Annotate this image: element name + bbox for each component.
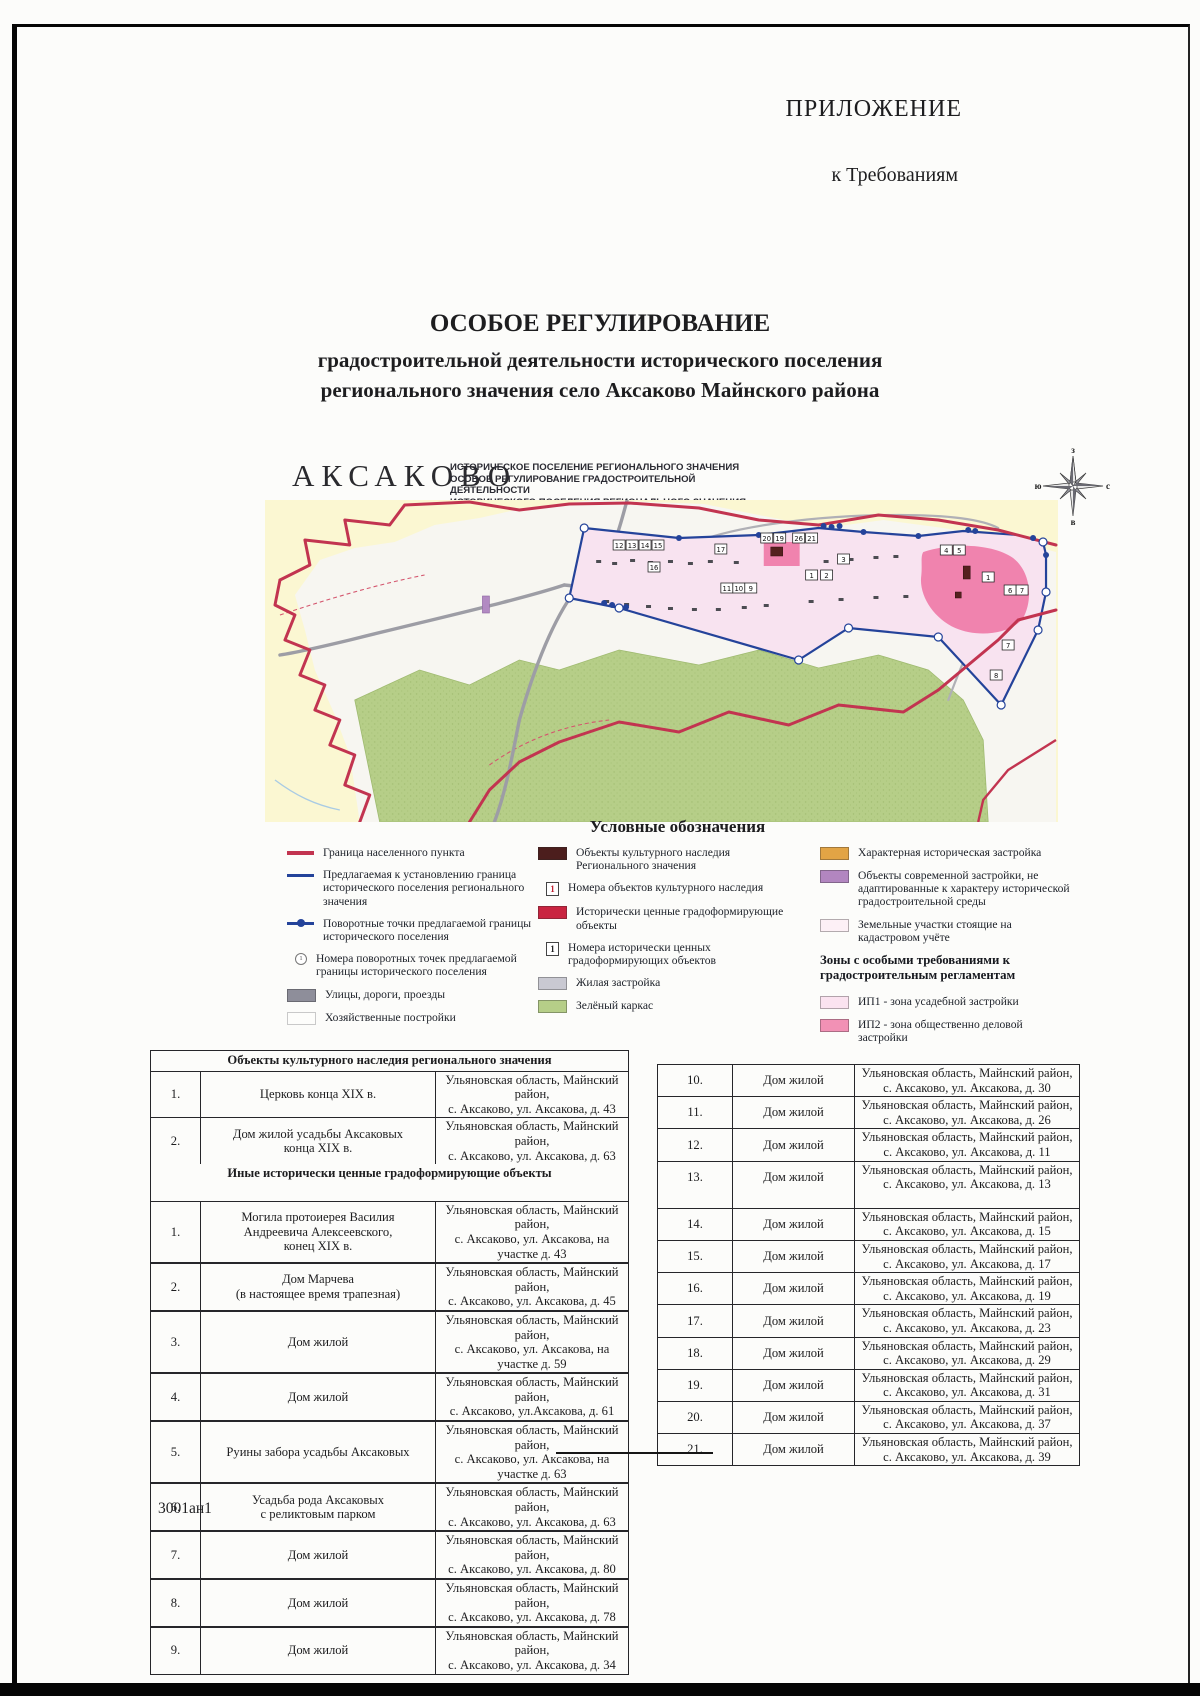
map-subtitle-line-1: ИСТОРИЧЕСКОЕ ПОСЕЛЕНИЕ РЕГИОНАЛЬНОГО ЗНА… (450, 462, 750, 474)
row-number: 12. (658, 1129, 733, 1160)
address-line-2: с. Аксаково, ул. Аксакова, д. 17 (858, 1257, 1076, 1272)
address-line-2: с. Аксаково, ул. Аксакова, на участке д.… (439, 1342, 625, 1371)
row-number: 11. (658, 1097, 733, 1128)
address-line-1: Ульяновская область, Майнский район, (439, 1203, 625, 1232)
legend-label: Объекты современной застройки, не адапти… (858, 869, 1070, 909)
legend-item: Земельные участки стоящие на кадастровом… (820, 918, 1070, 944)
legend-zone-item: ИП1 - зона усадебной застройки (820, 995, 1070, 1009)
legend-column-3: Характерная историческая застройка Объек… (820, 846, 1070, 1053)
svg-text:7: 7 (1006, 642, 1010, 650)
table-row: 15. Дом жилой Ульяновская область, Майнс… (658, 1241, 1079, 1273)
object-address: Ульяновская область, Майнский район, с. … (855, 1097, 1079, 1128)
legend-swatch (538, 1000, 567, 1013)
address-line-1: Ульяновская область, Майнский район, (858, 1435, 1076, 1450)
legend-item: Жилая застройка (538, 976, 788, 990)
svg-text:8: 8 (994, 672, 998, 680)
row-number: 13. (658, 1162, 733, 1208)
address-line-2: с. Аксаково, ул. Аксакова, д. 80 (439, 1562, 625, 1577)
object-name: Усадьба рода Аксаковых с реликтовым парк… (201, 1484, 436, 1530)
modern-building-mark (482, 596, 489, 613)
svg-text:1: 1 (986, 574, 990, 582)
address-line-2: с. Аксаково, ул. Аксакова, д. 29 (858, 1353, 1076, 1368)
address-line-2: с. Аксаково, ул. Аксакова, д. 19 (858, 1289, 1076, 1304)
object-address: Ульяновская область, Майнский район, с. … (855, 1370, 1079, 1401)
row-number: 3. (151, 1312, 201, 1372)
legend-swatch (820, 919, 849, 932)
legend-label: ИП1 - зона усадебной застройки (858, 995, 1019, 1008)
svg-text:11: 11 (723, 585, 732, 593)
row-number: 19. (658, 1370, 733, 1401)
address-line-1: Ульяновская область, Майнский район, (439, 1533, 625, 1562)
legend-swatch (287, 874, 314, 877)
table-row: 19. Дом жилой Ульяновская область, Майнс… (658, 1370, 1079, 1402)
object-name: Дом жилой (733, 1065, 855, 1096)
compass-north-label: с (1106, 481, 1110, 491)
legend-swatch (538, 847, 567, 860)
row-number: 2. (151, 1118, 201, 1164)
legend-column-2: Объекты культурного наследия Регионально… (538, 846, 788, 1022)
svg-text:9: 9 (749, 585, 753, 593)
object-address: Ульяновская область, Майнский район, с. … (855, 1241, 1079, 1272)
table-row: 1. Церковь конца XIX в. Ульяновская обла… (151, 1072, 628, 1119)
svg-text:7: 7 (1020, 587, 1024, 595)
legend-label: Жилая застройка (576, 976, 660, 989)
object-address: Ульяновская область, Майнский район, с. … (855, 1273, 1079, 1304)
row-number: 8. (151, 1580, 201, 1626)
document-page: ПРИЛОЖЕНИЕ к Требованиям ОСОБОЕ РЕГУЛИРО… (0, 0, 1200, 1696)
address-line-1: Ульяновская область, Майнский район, (858, 1210, 1076, 1225)
object-address: Ульяновская область, Майнский район, с. … (855, 1065, 1079, 1096)
address-line-2: с. Аксаково, ул. Аксакова, д. 26 (858, 1113, 1076, 1128)
legend-symbol: 1 (296, 954, 306, 964)
legend-label: Улицы, дороги, проезды (325, 988, 445, 1001)
legend-item: Хозяйственные постройки (287, 1011, 537, 1025)
object-address: Ульяновская область, Майнский район, с. … (855, 1129, 1079, 1160)
legend-label: Поворотные точки предлагаемой границы ис… (323, 917, 537, 943)
title-line-2: градостроительной деятельности историчес… (0, 345, 1200, 375)
legend-symbol: 1 (547, 883, 558, 895)
legend-label: ИП2 - зона общественно деловой застройки (858, 1018, 1070, 1044)
object-name: Церковь конца XIX в. (201, 1072, 436, 1118)
address-line-2: с. Аксаково, ул. Аксакова, д. 11 (858, 1145, 1076, 1160)
zones-heading: Зоны с особыми требованиями к градострои… (820, 953, 1070, 983)
legend-swatch (538, 977, 567, 990)
legend-item: 1 Номера поворотных точек предлагаемой г… (287, 952, 537, 978)
table-section-title: Объекты культурного наследия регионально… (151, 1051, 628, 1072)
address-line-1: Ульяновская область, Майнский район, (439, 1375, 625, 1404)
legend-label: Объекты культурного наследия Регионально… (576, 846, 788, 872)
legend-swatch (820, 1019, 849, 1032)
object-name: Дом жилой (733, 1209, 855, 1240)
settlement-map: 12 13 14 15 16 17 20 19 26 21 11 10 9 1 … (265, 500, 1058, 822)
scan-bottom-edge (0, 1683, 1200, 1696)
legend-swatch (287, 1012, 316, 1025)
address-line-2: с. Аксаково, ул. Аксакова, д. 37 (858, 1417, 1076, 1432)
object-address: Ульяновская область, Майнский район, с. … (436, 1264, 628, 1310)
object-address: Ульяновская область, Майнский район, с. … (436, 1118, 628, 1164)
address-line-1: Ульяновская область, Майнский район, (858, 1130, 1076, 1145)
row-number: 4. (151, 1374, 201, 1420)
svg-text:19: 19 (775, 535, 784, 543)
object-name: Дом жилой (733, 1129, 855, 1160)
heritage-objects-table: Объекты культурного наследия регионально… (150, 1050, 629, 1675)
object-name: Могила протоиерея Василия Андреевича Але… (201, 1202, 436, 1262)
table-row: 8. Дом жилой Ульяновская область, Майнск… (151, 1579, 628, 1627)
address-line-2: с. Аксаково, ул. Аксакова, д. 23 (858, 1321, 1076, 1336)
svg-text:2: 2 (824, 572, 828, 580)
object-name: Дом жилой (733, 1162, 855, 1208)
legend-swatch (820, 847, 849, 860)
row-number: 16. (658, 1273, 733, 1304)
heritage-objects-table-continued: 10. Дом жилой Ульяновская область, Майнс… (657, 1064, 1080, 1466)
legend-swatch (287, 851, 314, 855)
address-line-1: Ульяновская область, Майнский район, (858, 1163, 1076, 1178)
object-name: Дом жилой (201, 1312, 436, 1372)
object-address: Ульяновская область, Майнский район, с. … (855, 1305, 1079, 1336)
legend-column-1: Граница населенного пункта Предлагаемая … (287, 846, 537, 1034)
address-line-2: с. Аксаково, ул. Аксакова, д. 45 (439, 1294, 625, 1309)
object-name: Дом жилой (201, 1532, 436, 1578)
object-address: Ульяновская область, Майнский район, с. … (436, 1532, 628, 1578)
address-line-1: Ульяновская область, Майнский район, (439, 1485, 625, 1514)
address-line-2: с. Аксаково, ул. Аксакова, д. 43 (439, 1102, 625, 1117)
legend-swatch: 1 (546, 942, 559, 956)
svg-text:3: 3 (841, 556, 845, 564)
table-row: 3. Дом жилой Ульяновская область, Майнск… (151, 1311, 628, 1373)
legend-swatch (820, 870, 849, 883)
row-number: 20. (658, 1402, 733, 1433)
row-number: 15. (658, 1241, 733, 1272)
legend-swatch (820, 996, 849, 1009)
address-line-2: с. Аксаково, ул. Аксакова, д. 30 (858, 1081, 1076, 1096)
object-address: Ульяновская область, Майнский район, с. … (436, 1202, 628, 1262)
table-row: 14. Дом жилой Ульяновская область, Майнс… (658, 1209, 1079, 1241)
object-name: Дом жилой (201, 1580, 436, 1626)
object-name: Дом жилой (733, 1370, 855, 1401)
table-row: 6. Усадьба рода Аксаковых с реликтовым п… (151, 1483, 628, 1531)
address-line-1: Ульяновская область, Майнский район, (858, 1274, 1076, 1289)
legend-swatch: 1 (295, 953, 307, 965)
svg-text:4: 4 (944, 547, 948, 555)
object-address: Ульяновская область, Майнский район, с. … (436, 1072, 628, 1118)
address-line-2: с. Аксаково, ул. Аксакова, д. 31 (858, 1385, 1076, 1400)
svg-text:6: 6 (1008, 587, 1012, 595)
object-address: Ульяновская область, Майнский район, с. … (855, 1209, 1079, 1240)
object-address: Ульяновская область, Майнский район, с. … (436, 1312, 628, 1372)
object-name: Дом жилой (733, 1241, 855, 1272)
address-line-2: с. Аксаково, ул. Аксакова, д. 34 (439, 1658, 625, 1673)
table-row: 20. Дом жилой Ульяновская область, Майнс… (658, 1402, 1079, 1434)
compass-south-label: ю (1035, 481, 1042, 491)
row-number: 18. (658, 1338, 733, 1369)
svg-text:12: 12 (615, 542, 624, 550)
legend-label: Зелёный каркас (576, 999, 653, 1012)
svg-text:10: 10 (734, 585, 743, 593)
object-name: Дом жилой (733, 1097, 855, 1128)
table-row: 16. Дом жилой Ульяновская область, Майнс… (658, 1273, 1079, 1305)
map-subtitle-line-2: ОСОБОЕ РЕГУЛИРОВАНИЕ ГРАДОСТРОИТЕЛЬНОЙ Д… (450, 474, 750, 497)
object-address: Ульяновская область, Майнский район, с. … (855, 1434, 1079, 1465)
address-line-1: Ульяновская область, Майнский район, (439, 1629, 625, 1658)
object-address: Ульяновская область, Майнский район, с. … (855, 1402, 1079, 1433)
legend-item: Поворотные точки предлагаемой границы ис… (287, 917, 537, 943)
object-address: Ульяновская область, Майнский район, с. … (436, 1484, 628, 1530)
appendix-sublabel: к Требованиям (831, 164, 958, 187)
row-number: 9. (151, 1628, 201, 1674)
document-title: ОСОБОЕ РЕГУЛИРОВАНИЕ градостроительной д… (0, 310, 1200, 405)
title-line-3: регионального значения село Аксаково Май… (0, 375, 1200, 405)
address-line-2: с. Аксаково, ул. Аксакова, д. 78 (439, 1610, 625, 1625)
table-row: 17. Дом жилой Ульяновская область, Майнс… (658, 1305, 1079, 1337)
legend-item: Исторически ценные градоформирующие объе… (538, 905, 788, 931)
address-line-2: с. Аксаково, ул. Аксакова, на участке д.… (439, 1232, 625, 1261)
legend-item: 1 Номера исторически ценных градоформиру… (538, 941, 788, 967)
address-line-1: Ульяновская область, Майнский район, (858, 1371, 1076, 1386)
address-line-1: Ульяновская область, Майнский район, (439, 1313, 625, 1342)
object-address: Ульяновская область, Майнский район, с. … (436, 1374, 628, 1420)
object-name: Дом жилой (733, 1338, 855, 1369)
legend-title: Условные обозначения (540, 817, 815, 837)
row-number: 5. (151, 1422, 201, 1482)
table-row: 10. Дом жилой Ульяновская область, Майнс… (658, 1065, 1079, 1097)
address-line-1: Ульяновская область, Майнский район, (439, 1073, 625, 1102)
address-line-1: Ульяновская область, Майнский район, (858, 1098, 1076, 1113)
table-row: 2. Дом Марчева (в настоящее время трапез… (151, 1263, 628, 1311)
legend-item: Объекты современной застройки, не адапти… (820, 869, 1070, 909)
address-line-2: с. Аксаково, ул. Аксакова, д. 63 (439, 1149, 625, 1164)
row-number: 10. (658, 1065, 733, 1096)
svg-text:17: 17 (717, 546, 726, 554)
svg-text:20: 20 (762, 535, 771, 543)
row-number: 17. (658, 1305, 733, 1336)
object-name: Дом жилой усадьбы Аксаковых конца XIX в. (201, 1118, 436, 1164)
object-name: Дом жилой (201, 1374, 436, 1420)
address-line-2: с. Аксаково, ул. Аксакова, д. 13 (858, 1177, 1076, 1192)
table-row: 13. Дом жилой Ульяновская область, Майнс… (658, 1162, 1079, 1209)
legend-label: Характерная историческая застройка (858, 846, 1041, 859)
address-line-1: Ульяновская область, Майнский район, (858, 1242, 1076, 1257)
table-row: 12. Дом жилой Ульяновская область, Майнс… (658, 1129, 1079, 1161)
row-number: 14. (658, 1209, 733, 1240)
row-number: 1. (151, 1072, 201, 1118)
svg-text:21: 21 (807, 535, 816, 543)
legend-swatch (287, 989, 316, 1002)
address-line-1: Ульяновская область, Майнский район, (439, 1119, 625, 1148)
legend-label: Хозяйственные постройки (325, 1011, 456, 1024)
footer-divider (556, 1452, 713, 1454)
address-line-2: с. Аксаково, ул. Аксакова, на участке д.… (439, 1452, 625, 1481)
legend-item: Улицы, дороги, проезды (287, 988, 537, 1002)
svg-text:16: 16 (650, 564, 659, 572)
object-address: Ульяновская область, Майнский район, с. … (436, 1628, 628, 1674)
legend-item: Характерная историческая застройка (820, 846, 1070, 860)
table-row: 9. Дом жилой Ульяновская область, Майнск… (151, 1627, 628, 1674)
row-number: 7. (151, 1532, 201, 1578)
svg-text:1: 1 (809, 572, 813, 580)
address-line-1: Ульяновская область, Майнский район, (439, 1581, 625, 1610)
address-line-1: Ульяновская область, Майнский район, (439, 1265, 625, 1294)
svg-text:26: 26 (794, 535, 803, 543)
address-line-1: Ульяновская область, Майнский район, (858, 1306, 1076, 1321)
table-row: 4. Дом жилой Ульяновская область, Майнск… (151, 1373, 628, 1421)
legend-label: Граница населенного пункта (323, 846, 465, 859)
legend-label: Номера исторически ценных градоформирующ… (568, 941, 788, 967)
object-address: Ульяновская область, Майнский район, с. … (855, 1338, 1079, 1369)
table-row: 7. Дом жилой Ульяновская область, Майнск… (151, 1531, 628, 1579)
legend-item: 1 Номера объектов культурного наследия (538, 881, 788, 896)
table-row: 1. Могила протоиерея Василия Андреевича … (151, 1201, 628, 1263)
address-line-2: с. Аксаково, ул. Аксакова, д. 39 (858, 1450, 1076, 1465)
appendix-label: ПРИЛОЖЕНИЕ (785, 96, 962, 123)
legend-zone-item: ИП2 - зона общественно деловой застройки (820, 1018, 1070, 1044)
object-name: Дом жилой (733, 1434, 855, 1465)
church-building-mark (771, 547, 783, 556)
object-name: Дом жилой (733, 1305, 855, 1336)
table-section-title: Иные исторически ценные градоформирующие… (151, 1164, 628, 1201)
compass-east-label: в (1071, 517, 1076, 526)
table-row: 21. Дом жилой Ульяновская область, Майнс… (658, 1434, 1079, 1465)
legend-item: Граница населенного пункта (287, 846, 537, 859)
object-name: Дом жилой (733, 1273, 855, 1304)
address-line-1: Ульяновская область, Майнский район, (858, 1403, 1076, 1418)
row-number: 21. (658, 1434, 733, 1465)
legend-label: Предлагаемая к установлению граница исто… (323, 868, 537, 908)
address-line-1: Ульяновская область, Майнский район, (858, 1066, 1076, 1081)
legend-swatch: 1 (546, 882, 559, 896)
legend-swatch (287, 922, 314, 925)
legend-label: Номера объектов культурного наследия (568, 881, 763, 894)
manor-building-mark (963, 566, 970, 579)
svg-text:14: 14 (641, 542, 650, 550)
object-name: Руины забора усадьбы Аксаковых (201, 1422, 436, 1482)
legend-label: Исторически ценные градоформирующие объе… (576, 905, 788, 931)
address-line-1: Ульяновская область, Майнский район, (858, 1339, 1076, 1354)
address-line-2: с. Аксаково, ул. Аксакова, д. 63 (439, 1515, 625, 1530)
row-number: 2. (151, 1264, 201, 1310)
legend-item: Объекты культурного наследия Регионально… (538, 846, 788, 872)
title-line-1: ОСОБОЕ РЕГУЛИРОВАНИЕ (0, 310, 1200, 338)
object-name: Дом жилой (733, 1402, 855, 1433)
legend-swatch (538, 906, 567, 919)
object-address: Ульяновская область, Майнский район, с. … (436, 1580, 628, 1626)
svg-text:15: 15 (654, 542, 663, 550)
object-name: Дом Марчева (в настоящее время трапезная… (201, 1264, 436, 1310)
table-row: 2. Дом жилой усадьбы Аксаковых конца XIX… (151, 1118, 628, 1164)
object-address: Ульяновская область, Майнский район, с. … (855, 1162, 1079, 1208)
address-line-2: с. Аксаково, ул.Аксакова, д. 61 (439, 1404, 625, 1419)
compass-west-label: з (1071, 446, 1075, 455)
legend-item: Зелёный каркас (538, 999, 788, 1013)
address-line-2: с. Аксаково, ул. Аксакова, д. 15 (858, 1224, 1076, 1239)
svg-text:13: 13 (628, 542, 637, 550)
address-line-1: Ульяновская область, Майнский район, (439, 1423, 625, 1452)
legend-label: Номера поворотных точек предлагаемой гра… (316, 952, 537, 978)
row-number: 1. (151, 1202, 201, 1262)
table-row: 18. Дом жилой Ульяновская область, Майнс… (658, 1338, 1079, 1370)
legend-symbol: 1 (547, 943, 558, 955)
object-name: Дом жилой (201, 1628, 436, 1674)
table-row: 11. Дом жилой Ульяновская область, Майнс… (658, 1097, 1079, 1129)
legend-label: Земельные участки стоящие на кадастровом… (858, 918, 1070, 944)
document-code: 3001ан1 (158, 1500, 212, 1518)
svg-text:5: 5 (957, 547, 961, 555)
legend-item: Предлагаемая к установлению граница исто… (287, 868, 537, 908)
